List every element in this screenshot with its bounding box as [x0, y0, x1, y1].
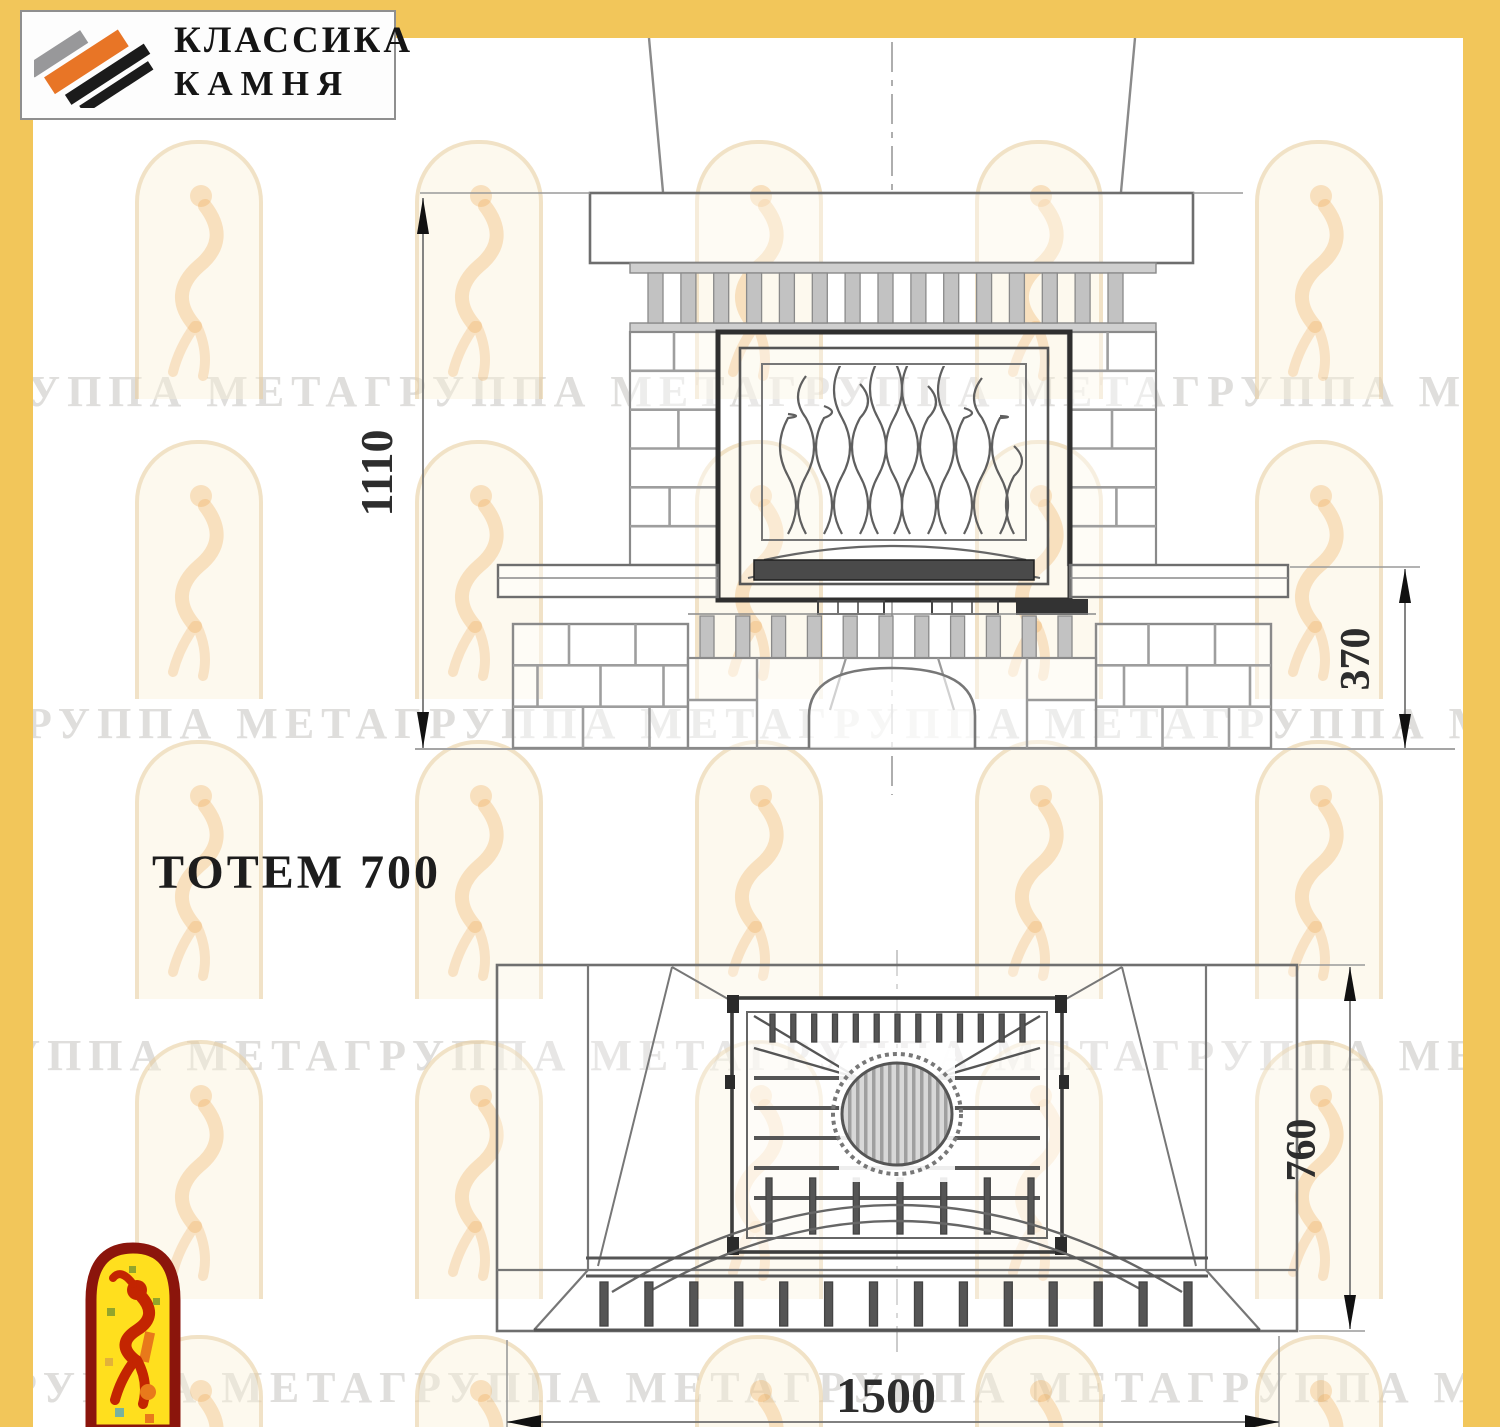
logo-line-2: КАМНЯ [174, 66, 413, 101]
vent-grille-slits [838, 601, 858, 614]
company-logo: КЛАССИКА КАМНЯ [20, 10, 396, 120]
dentil-band-upper [630, 263, 1156, 332]
vent-grille-slits [952, 601, 972, 614]
plan-depth-label: 760 [1279, 1119, 1325, 1182]
plan-width-label: 1500 [836, 1367, 936, 1423]
ash-lip-bar [754, 560, 1034, 580]
firebox-insert [718, 332, 1088, 615]
fire-spirit-arch-emblem-icon [85, 1240, 181, 1427]
mantel-shelf [590, 193, 1193, 263]
flue-outlet-circle [842, 1063, 952, 1165]
brick-pier-right [1068, 332, 1156, 565]
dimension-plinth-height: 370 [1290, 567, 1420, 748]
logo-text: КЛАССИКА КАМНЯ [174, 22, 413, 101]
wood-niche-arch [809, 668, 975, 748]
firebox-door-frame [740, 348, 1048, 584]
front-height-label: 1110 [351, 430, 402, 517]
page-frame-left [0, 0, 33, 1427]
vent-grille [818, 601, 884, 614]
plinth-height-label: 370 [1333, 628, 1379, 691]
brick-pier-left [630, 332, 718, 565]
plan-view-drawing: 760 1500 [497, 950, 1365, 1427]
vent-grille [932, 601, 998, 614]
stone-stripes-logo-mark-icon [34, 22, 162, 108]
plan-insert [725, 995, 1069, 1255]
dimension-front-height: 1110 [351, 198, 429, 748]
catalog-page: ГРУППА МЕТАГРУППА МЕТАГРУППА МЕТАГРУППА … [0, 0, 1500, 1427]
logo-line-1: КЛАССИКА [174, 22, 413, 59]
dentil-band-lower [688, 614, 1096, 658]
dimension-plan-width: 1500 [507, 1336, 1279, 1427]
page-frame-right [1463, 0, 1500, 1427]
vent-grille-dark [1016, 599, 1088, 615]
fireplace-technical-drawing: 1110 370 [0, 0, 1500, 1427]
front-elevation-drawing: 1110 370 [351, 38, 1455, 795]
model-title: ТОТЕМ 700 [152, 845, 441, 900]
